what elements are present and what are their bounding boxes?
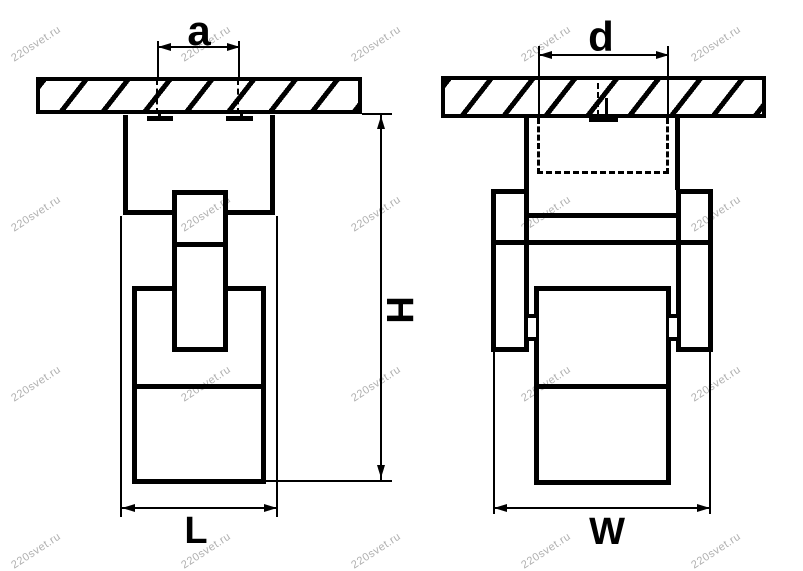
watermark: 220svet.ru (9, 194, 63, 235)
dim-L-extension-left (120, 216, 122, 517)
dim-W-extension-right (709, 352, 711, 514)
ceiling-slab-side (441, 76, 766, 118)
screw-centerline-left (156, 79, 158, 114)
dim-W-arrow-left (494, 504, 507, 512)
dim-W-label: W (585, 513, 629, 551)
watermark: 220svet.ru (349, 364, 403, 405)
watermark: 220svet.ru (9, 24, 63, 65)
dim-H-arrow-bottom (377, 465, 385, 478)
pivot-pin-right (667, 314, 679, 341)
stem-side-left (524, 118, 529, 190)
dim-H-label: H (380, 290, 418, 330)
watermark: 220svet.ru (9, 364, 63, 405)
screw-centerline-center (597, 83, 599, 116)
yoke-arm-left (491, 189, 529, 352)
dim-H-line (380, 114, 382, 482)
watermark: 220svet.ru (349, 194, 403, 235)
center-clip (589, 117, 618, 122)
stem-joint-divider (177, 242, 223, 247)
dim-L-arrow-left (122, 504, 135, 512)
dim-a-arrow-left (158, 43, 171, 51)
dim-d-label: d (581, 16, 621, 58)
dim-W-extension-left (493, 352, 495, 514)
recessed-cup-hidden-outline (537, 118, 669, 174)
technical-drawing: a L H (0, 0, 803, 571)
lamp-head-divider-side (539, 384, 666, 389)
watermark: 220svet.ru (689, 24, 743, 65)
watermark: 220svet.ru (689, 531, 743, 571)
watermark: 220svet.ru (519, 531, 573, 571)
clip-stub-left (158, 111, 161, 117)
dim-H-extension-top (362, 113, 392, 115)
dim-L-arrow-right (264, 504, 277, 512)
yoke-crossbar-bottom (491, 240, 713, 245)
dim-W-arrow-right (697, 504, 710, 512)
ceiling-slab-front (36, 77, 362, 114)
clip-stub-right (240, 111, 243, 117)
dim-a-arrow-right (227, 43, 240, 51)
center-clip-stub (605, 98, 608, 118)
pivot-pin-left (526, 314, 538, 341)
stem-side-right (675, 118, 680, 190)
dim-H-extension-bottom (266, 480, 392, 482)
watermark: 220svet.ru (349, 24, 403, 65)
dim-W-line (494, 507, 711, 509)
watermark: 220svet.ru (349, 531, 403, 571)
dim-H-arrow-top (377, 116, 385, 129)
watermark: 220svet.ru (9, 531, 63, 571)
screw-centerline-right (237, 79, 239, 114)
dim-L-line (122, 507, 278, 509)
dim-L-extension-right (276, 216, 278, 517)
watermark: 220svet.ru (689, 364, 743, 405)
dim-d-arrow-right (656, 51, 669, 59)
dim-d-line (539, 54, 669, 56)
